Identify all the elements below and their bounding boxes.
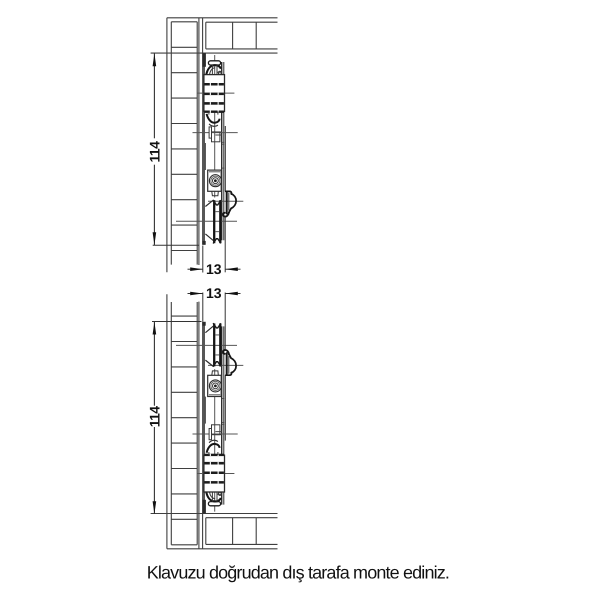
svg-text:13: 13 (206, 261, 222, 277)
svg-text:114: 114 (147, 141, 163, 163)
svg-text:Klavuzu doğrudan dış tarafa mo: Klavuzu doğrudan dış tarafa monte ediniz… (147, 563, 449, 583)
svg-text:13: 13 (206, 285, 222, 301)
svg-text:114: 114 (147, 406, 163, 428)
